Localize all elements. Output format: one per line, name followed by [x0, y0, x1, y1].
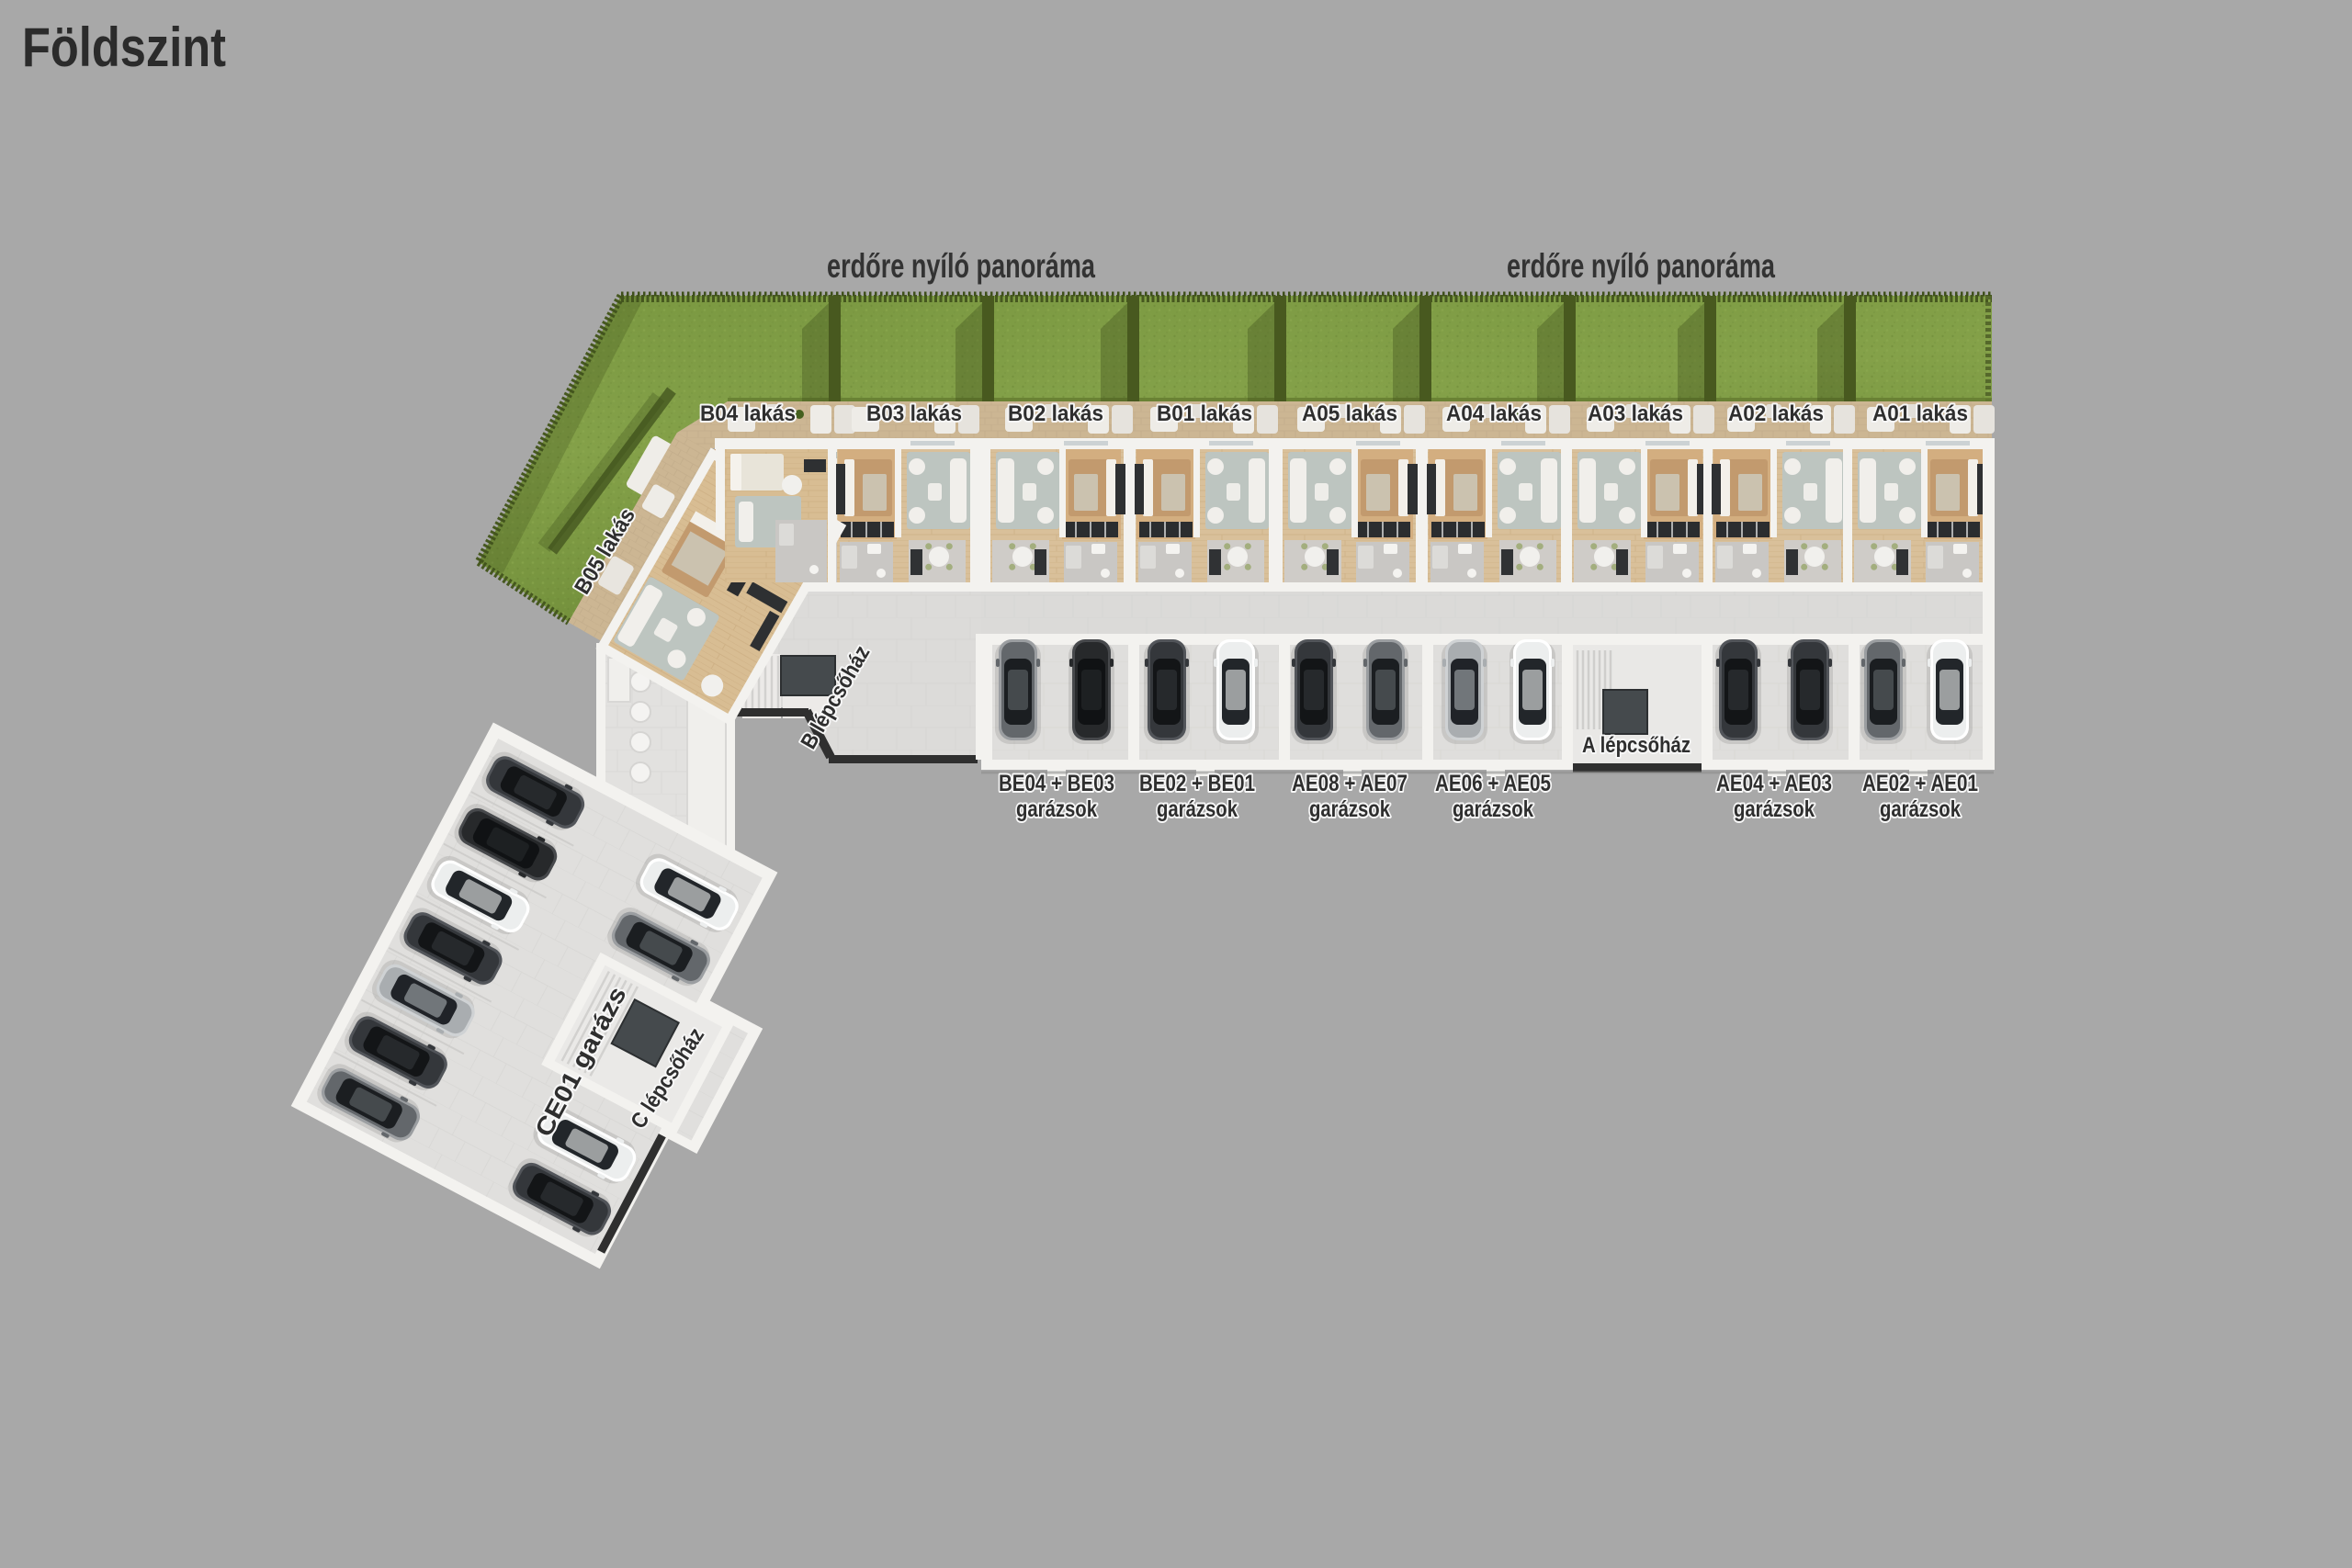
svg-text:garázsok: garázsok [1016, 796, 1097, 822]
svg-text:AE02 + AE01: AE02 + AE01 [1862, 771, 1978, 796]
svg-text:BE02 + BE01: BE02 + BE01 [1139, 771, 1255, 796]
svg-text:AE08 + AE07: AE08 + AE07 [1292, 771, 1408, 796]
svg-text:erdőre nyíló panoráma: erdőre nyíló panoráma [827, 247, 1095, 285]
svg-text:garázsok: garázsok [1734, 796, 1815, 822]
svg-text:B03 lakás: B03 lakás [866, 401, 962, 426]
svg-text:AE06 + AE05: AE06 + AE05 [1435, 771, 1551, 796]
svg-text:A01 lakás: A01 lakás [1872, 401, 1968, 426]
svg-text:garázsok: garázsok [1453, 796, 1533, 822]
svg-text:garázsok: garázsok [1880, 796, 1961, 822]
svg-text:BE04 + BE03: BE04 + BE03 [999, 771, 1114, 796]
svg-text:A03 lakás: A03 lakás [1588, 401, 1683, 426]
svg-text:B04 lakás: B04 lakás [700, 401, 796, 426]
svg-text:erdőre nyíló panoráma: erdőre nyíló panoráma [1507, 247, 1775, 285]
svg-text:B02 lakás: B02 lakás [1008, 401, 1103, 426]
svg-text:garázsok: garázsok [1157, 796, 1238, 822]
svg-text:A lépcsőház: A lépcsőház [1582, 733, 1690, 758]
svg-text:B01 lakás: B01 lakás [1157, 401, 1252, 426]
svg-text:garázsok: garázsok [1309, 796, 1390, 822]
svg-text:AE04 + AE03: AE04 + AE03 [1716, 771, 1832, 796]
svg-text:A04 lakás: A04 lakás [1446, 401, 1542, 426]
svg-text:A05 lakás: A05 lakás [1302, 401, 1397, 426]
svg-text:Földszint: Földszint [22, 17, 226, 78]
svg-text:A02 lakás: A02 lakás [1728, 401, 1824, 426]
